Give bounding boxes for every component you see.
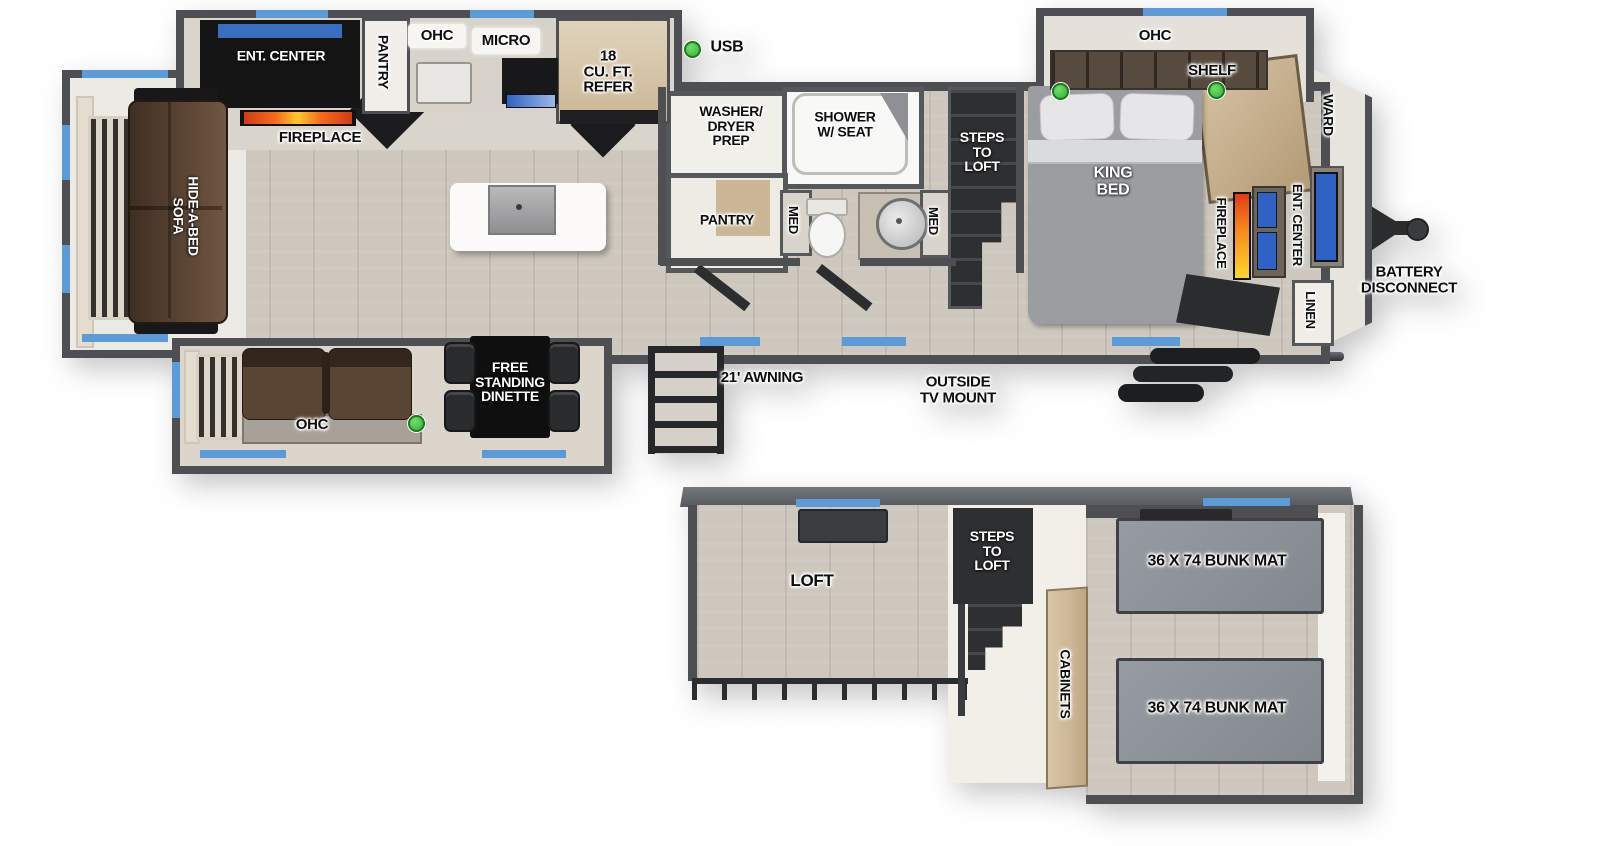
loft-steps-rail xyxy=(958,604,965,716)
bunk-mat-label: 36 X 74 BUNK MAT xyxy=(1148,554,1287,571)
loft-tv xyxy=(798,509,888,543)
bunk-mat-label: 36 X 74 BUNK MAT xyxy=(1148,701,1287,718)
loft-label: LOFT xyxy=(790,572,833,590)
rv-floorplan-diagram: HIDE-A-BED SOFA ENT. CENTER PANTRY OHC M… xyxy=(0,0,1600,846)
loft-floorplan: LOFT STEPS TO LOFT CABINETS 36 X 74 BUNK… xyxy=(0,0,1600,846)
cabinets-label: CABINETS xyxy=(1058,649,1073,718)
window-strip xyxy=(1203,498,1290,506)
bunk-tv xyxy=(1140,509,1232,520)
window-strip xyxy=(796,499,880,507)
loft-steps-label: STEPS TO LOFT xyxy=(970,529,1014,573)
loft-railing xyxy=(692,678,968,700)
